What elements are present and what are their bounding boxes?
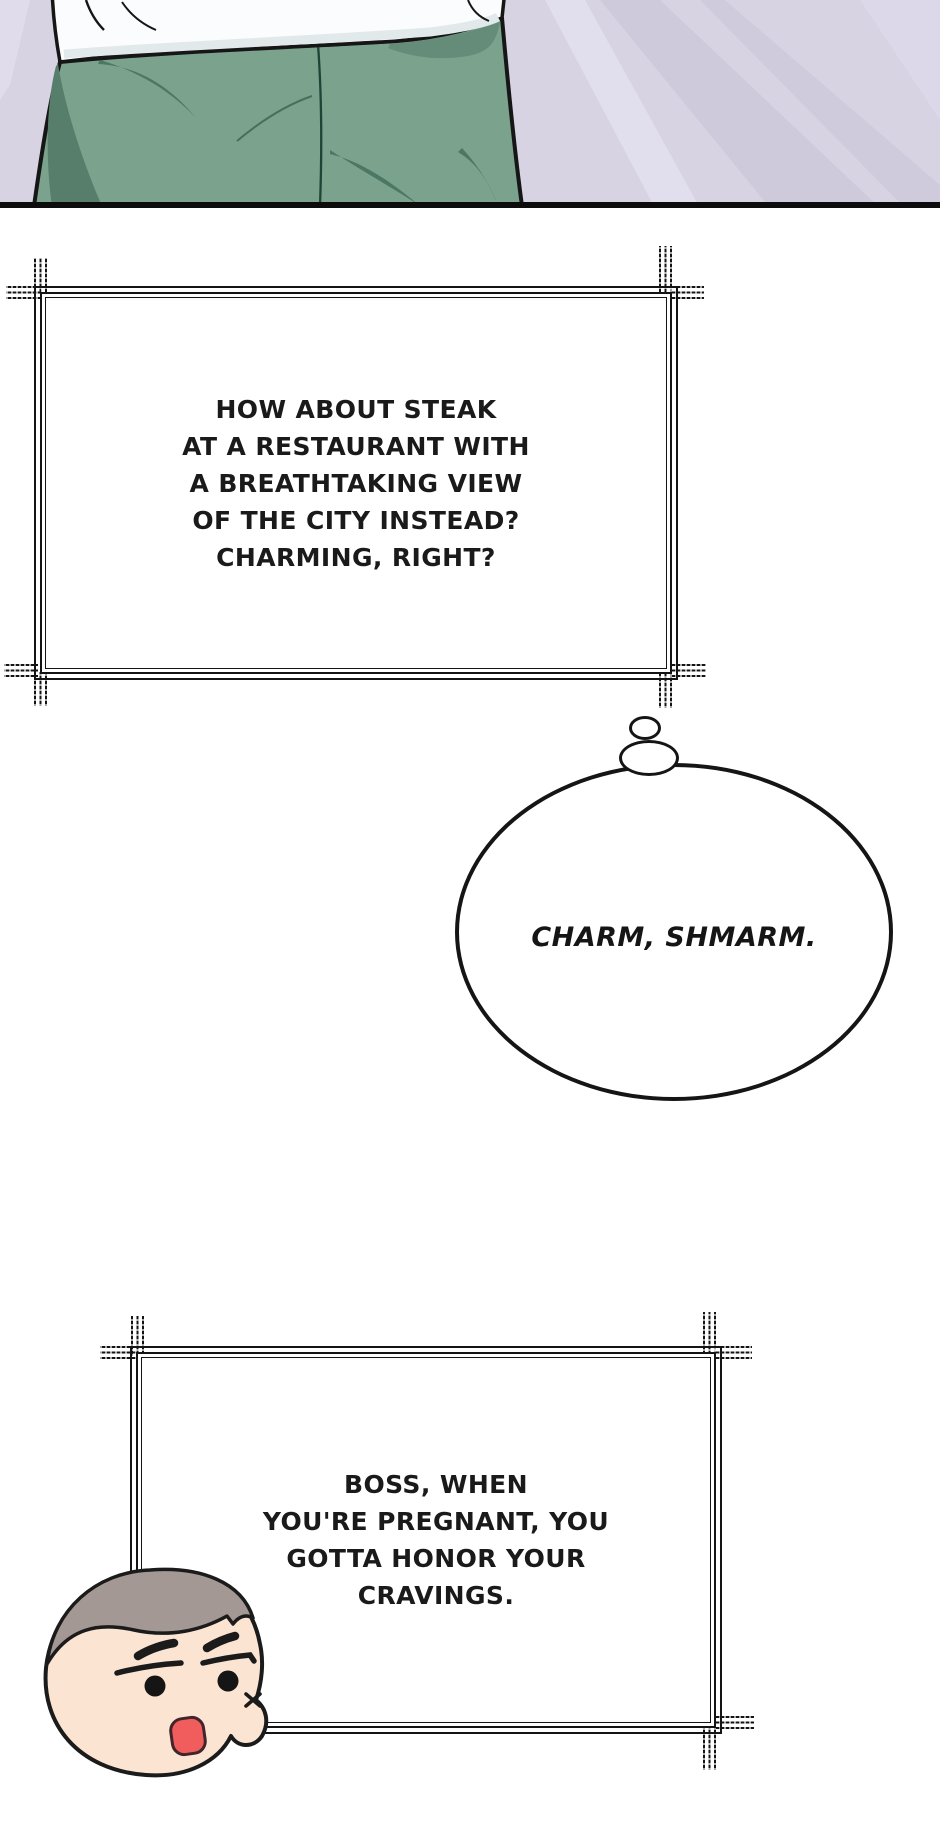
speech-box-1-text: HOW ABOUT STEAK AT A RESTAURANT WITH A B… bbox=[182, 391, 530, 576]
speech-box-1: HOW ABOUT STEAK AT A RESTAURANT WITH A B… bbox=[40, 292, 672, 674]
speech-line: CHARMING, RIGHT? bbox=[182, 539, 530, 576]
corner-stub bbox=[659, 672, 672, 708]
corner-stub bbox=[670, 286, 704, 299]
corner-stub bbox=[100, 1346, 136, 1359]
speech-box-2-text: BOSS, WHEN YOU'RE PREGNANT, YOU GOTTA HO… bbox=[263, 1466, 609, 1614]
corner-stub bbox=[6, 286, 42, 299]
corner-stub bbox=[34, 672, 47, 706]
thought-bubble-text: CHARM, SHMARM. bbox=[531, 922, 816, 953]
speech-line: HOW ABOUT STEAK bbox=[182, 391, 530, 428]
speech-line: CRAVINGS. bbox=[263, 1577, 609, 1614]
corner-stub bbox=[4, 664, 38, 677]
speech-line: BOSS, WHEN bbox=[263, 1466, 609, 1503]
comic-page: HOW ABOUT STEAK AT A RESTAURANT WITH A B… bbox=[0, 0, 940, 1830]
bubble-trail-dot-small bbox=[629, 716, 661, 740]
speech-line: YOU'RE PREGNANT, YOU bbox=[263, 1503, 609, 1540]
bubble-trail-dot-large bbox=[619, 740, 679, 776]
corner-stub bbox=[670, 664, 706, 677]
chibi-face bbox=[38, 1564, 278, 1790]
torso-illustration bbox=[0, 0, 940, 208]
speech-line: A BREATHTAKING VIEW bbox=[182, 465, 530, 502]
photo-panel bbox=[0, 0, 940, 208]
thought-bubble: CHARM, SHMARM. bbox=[455, 763, 893, 1101]
panel-bottom-border bbox=[0, 202, 940, 208]
speech-line: OF THE CITY INSTEAD? bbox=[182, 502, 530, 539]
eye-left bbox=[145, 1676, 166, 1697]
corner-stub bbox=[703, 1726, 716, 1770]
eye-right bbox=[218, 1671, 239, 1692]
speech-line: GOTTA HONOR YOUR bbox=[263, 1540, 609, 1577]
mouth bbox=[169, 1716, 207, 1756]
chibi-character bbox=[38, 1564, 278, 1790]
speech-line: AT A RESTAURANT WITH bbox=[182, 428, 530, 465]
corner-stub bbox=[714, 1346, 752, 1359]
corner-stub bbox=[714, 1716, 754, 1729]
